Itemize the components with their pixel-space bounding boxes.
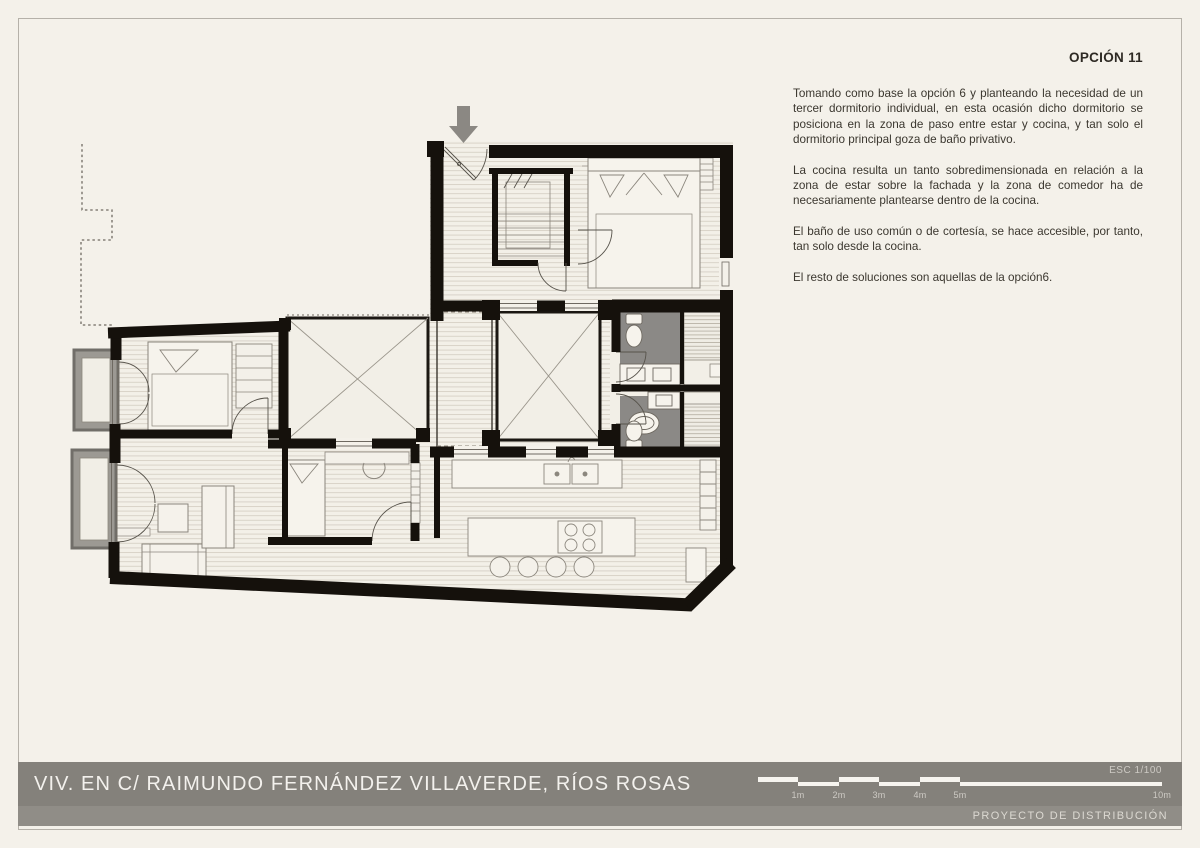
scale-segment bbox=[798, 782, 839, 786]
bathrooms bbox=[610, 300, 733, 454]
scale-segment bbox=[879, 782, 920, 786]
kitchen-island bbox=[468, 518, 635, 556]
desk bbox=[325, 452, 409, 464]
sheet: OPCIÓN 11 Tomando como base la opción 6 … bbox=[0, 0, 1200, 848]
footer-label: PROYECTO DE DISTRIBUCIÓN bbox=[973, 810, 1168, 822]
scale-label: ESC 1/100 bbox=[1109, 765, 1162, 776]
coffee-table bbox=[158, 504, 188, 532]
note-paragraph-2: La cocina resulta un tanto sobredimensio… bbox=[793, 163, 1143, 209]
scale-tick-label: 4m bbox=[913, 790, 926, 800]
boundary-dashed bbox=[81, 144, 112, 325]
scale-segment bbox=[758, 777, 798, 782]
scale-segment bbox=[839, 777, 879, 782]
double-bed bbox=[588, 158, 700, 288]
bed-3 bbox=[287, 460, 325, 536]
pantry bbox=[700, 460, 716, 530]
scale-segment bbox=[960, 782, 1162, 786]
footer-strip: PROYECTO DE DISTRIBUCIÓN bbox=[18, 806, 1182, 826]
note-paragraph-3: El baño de uso común o de cortesía, se h… bbox=[793, 224, 1143, 255]
scale-segment bbox=[920, 777, 960, 782]
title-bar: VIV. EN C/ RAIMUNDO FERNÁNDEZ VILLAVERDE… bbox=[18, 762, 1182, 806]
toilet-icon bbox=[626, 314, 642, 324]
scale-tick-label: 10m bbox=[1153, 790, 1171, 800]
entry-arrow-icon bbox=[449, 106, 478, 143]
bed-2 bbox=[148, 342, 232, 430]
note-paragraph-4: El resto de soluciones son aquellas de l… bbox=[793, 270, 1143, 285]
scale-tick-label: 1m bbox=[791, 790, 804, 800]
scale-tick-label: 3m bbox=[872, 790, 885, 800]
sofa bbox=[142, 544, 206, 576]
project-title: VIV. EN C/ RAIMUNDO FERNÁNDEZ VILLAVERDE… bbox=[34, 762, 691, 806]
note-paragraph-1: Tomando como base la opción 6 y plantean… bbox=[793, 86, 1143, 148]
notes-panel: OPCIÓN 11 Tomando como base la opción 6 … bbox=[793, 50, 1143, 300]
scale-tick-label: 5m bbox=[953, 790, 966, 800]
scale-tick-label: 2m bbox=[832, 790, 845, 800]
bedroom-master bbox=[582, 152, 713, 288]
scale-bar: ESC 1/100 1m 2m 3m 4m 5m 10m bbox=[758, 777, 1162, 805]
chaise bbox=[202, 486, 234, 548]
option-title: OPCIÓN 11 bbox=[793, 50, 1143, 65]
